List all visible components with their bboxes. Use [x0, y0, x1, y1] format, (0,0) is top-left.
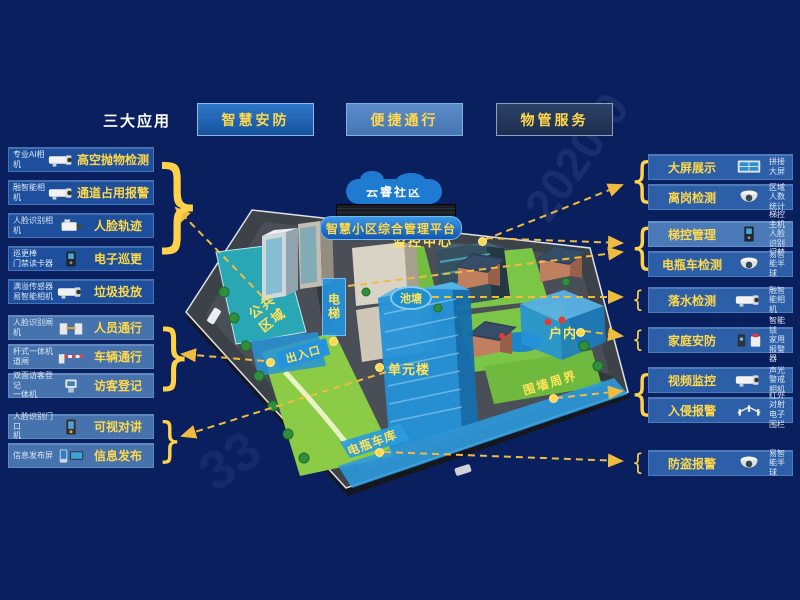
- feature-label: 电瓶车检测: [653, 256, 731, 273]
- right-group-home: 家庭安防智能锁 家用报警器: [648, 327, 793, 357]
- feature-label: 垃圾投放: [87, 283, 149, 300]
- bullet-camera-icon: [47, 183, 77, 203]
- device-row: 落水检测融智能相机: [648, 287, 793, 313]
- device-label: 专业AI相机: [13, 150, 47, 169]
- device-row: 入侵报警红外对射 电子围栏: [648, 397, 793, 423]
- feature-label: 梯控管理: [653, 226, 731, 243]
- device-label: 拼接大屏: [767, 157, 788, 176]
- dome-camera-icon: [731, 187, 767, 207]
- right-group-perimeter: 视频监控声光警戒相机入侵报警红外对射 电子围栏: [648, 367, 793, 427]
- device-label: 满溢传感器 易智能相机: [13, 282, 55, 301]
- feature-label: 电子巡更: [87, 250, 149, 267]
- barrier-gate-icon: [55, 347, 87, 367]
- device-label: 人脸识别门口 机: [13, 412, 55, 441]
- device-label: 杆式一体机 道闸: [13, 347, 55, 366]
- fence-icon: [731, 400, 767, 420]
- zone-dot: [375, 448, 384, 457]
- section-label: 三大应用: [103, 110, 171, 131]
- bullet-camera-icon: [47, 150, 77, 170]
- left-group-entrance-access: 人脸识别闸机人员通行杆式一体机 道闸车辆通行双面访客登记 一体机访客登记: [8, 315, 154, 402]
- left-group-community-monitoring: 专业AI相机高空抛物检测融智能相机通道占用报警人脸识别相机人脸轨迹巡更棒 门禁读…: [8, 147, 154, 312]
- dome-camera-icon: [731, 453, 767, 473]
- device-label: 易智能半球: [767, 449, 788, 478]
- door-station-icon: [55, 417, 87, 437]
- kiosk-icon: [55, 376, 87, 396]
- device-label: 人脸识别相机: [13, 216, 55, 235]
- device-label: 巡更棒 门禁读卡器: [13, 249, 55, 268]
- access-panel-icon: [55, 249, 87, 269]
- device-label: 红外对射 电子围栏: [767, 391, 788, 429]
- platform-label: 智慧小区综合管理平台: [320, 216, 462, 240]
- feature-label: 车辆通行: [87, 348, 149, 365]
- device-label: 融智能相机: [767, 286, 788, 315]
- zone-dot: [478, 237, 487, 246]
- device-row: 大屏展示拼接大屏: [648, 154, 793, 180]
- left-group-unit-building: 人脸识别门口 机可视对讲信息发布屏信息发布: [8, 414, 154, 472]
- device-row: 双面访客登记 一体机访客登记: [8, 373, 154, 398]
- zone-dot: [329, 337, 338, 346]
- zone-elevator: 电梯: [322, 278, 346, 336]
- bullet-camera-icon: [731, 370, 767, 390]
- feature-label: 家庭安防: [653, 332, 731, 349]
- turnstile-icon: [55, 318, 87, 338]
- box-camera-icon: [55, 216, 87, 236]
- feature-label: 人脸轨迹: [87, 217, 149, 234]
- zone-dot: [266, 358, 275, 367]
- bullet-camera-icon: [731, 290, 767, 310]
- device-row: 专业AI相机高空抛物检测: [8, 147, 154, 172]
- device-row: 家庭安防智能锁 家用报警器: [648, 327, 793, 353]
- device-row: 巡更棒 门禁读卡器电子巡更: [8, 246, 154, 271]
- bullet-camera-icon: [55, 282, 87, 302]
- feature-label: 可视对讲: [87, 418, 149, 435]
- dome-camera-icon: [731, 254, 767, 274]
- zone-dot: [576, 328, 585, 337]
- device-label: 区域人数统计: [767, 183, 788, 212]
- right-group-elevator: 梯控管理梯控主机 人脸识别门禁电瓶车检测易智能半球: [648, 221, 793, 281]
- app-button-property[interactable]: 物管服务: [496, 103, 613, 136]
- signage-screen-icon: [55, 446, 87, 466]
- device-row: 满溢传感器 易智能相机垃圾投放: [8, 279, 154, 304]
- device-row: 视频监控声光警戒相机: [648, 367, 793, 393]
- device-row: 离岗检测区域人数统计: [648, 184, 793, 210]
- zone-dot: [549, 394, 558, 403]
- feature-label: 视频监控: [653, 372, 731, 389]
- feature-label: 大屏展示: [653, 159, 731, 176]
- device-label: 信息发布屏: [13, 451, 55, 461]
- right-group-pond: 落水检测融智能相机: [648, 287, 793, 317]
- zone-pond: 池塘: [390, 286, 432, 310]
- feature-label: 离岗检测: [653, 189, 731, 206]
- smart-community-diagram: 2020-0 33: [0, 0, 800, 600]
- device-row: 人脸识别相机人脸轨迹: [8, 213, 154, 238]
- device-label: 融智能相机: [13, 183, 47, 202]
- device-row: 杆式一体机 道闸车辆通行: [8, 344, 154, 369]
- feature-label: 防盗报警: [653, 455, 731, 472]
- zone-dot: [375, 363, 384, 372]
- device-row: 防盗报警易智能半球: [648, 450, 793, 476]
- app-button-security[interactable]: 智慧安防: [197, 103, 314, 136]
- device-row: 电瓶车检测易智能半球: [648, 251, 793, 277]
- device-label: 双面访客登记 一体机: [13, 371, 55, 400]
- device-row: 梯控管理梯控主机 人脸识别门禁: [648, 221, 793, 247]
- feature-label: 访客登记: [87, 377, 149, 394]
- device-row: 人脸识别门口 机可视对讲: [8, 414, 154, 439]
- device-row: 融智能相机通道占用报警: [8, 180, 154, 205]
- device-label: 智能锁 家用报警器: [767, 316, 788, 364]
- video-wall-icon: [731, 157, 767, 177]
- feature-label: 入侵报警: [653, 402, 731, 419]
- device-label: 易智能半球: [767, 250, 788, 279]
- device-row: 信息发布屏信息发布: [8, 443, 154, 468]
- feature-label: 通道占用报警: [77, 184, 149, 201]
- feature-label: 落水检测: [653, 292, 731, 309]
- elevator-panel-icon: [731, 224, 767, 244]
- device-label: 人脸识别闸机: [13, 318, 55, 337]
- feature-label: 人员通行: [87, 319, 149, 336]
- device-row: 人脸识别闸机人员通行: [8, 315, 154, 340]
- right-group-monitoring-center: 大屏展示拼接大屏离岗检测区域人数统计: [648, 154, 793, 214]
- lock-siren-icon: [731, 330, 767, 350]
- right-group-garage: 防盗报警易智能半球: [648, 450, 793, 480]
- cloud-label: 云睿社区: [346, 179, 442, 204]
- app-button-access[interactable]: 便捷通行: [346, 103, 463, 136]
- feature-label: 信息发布: [87, 447, 149, 464]
- feature-label: 高空抛物检测: [77, 151, 149, 168]
